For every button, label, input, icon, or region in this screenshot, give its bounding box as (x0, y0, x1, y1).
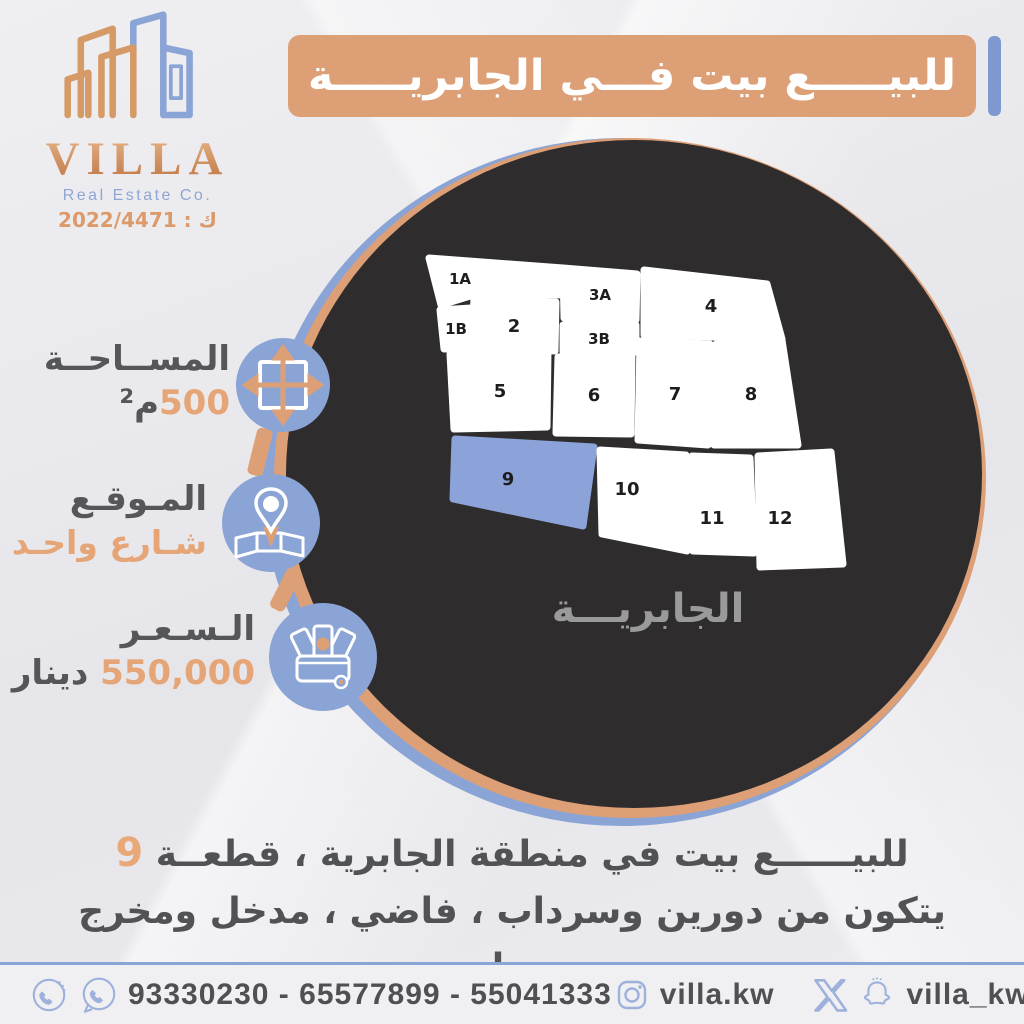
price-value: 550,000 دينار (0, 652, 255, 696)
logo-title: VILLA (30, 136, 245, 183)
map-plot-label: 9 (502, 469, 515, 490)
footer-social-group: villa.kw villa_kw (612, 974, 1024, 1016)
whatsapp-icon (78, 974, 120, 1016)
area-value: 500م² (0, 382, 230, 426)
banner: للبيـــــع بيت فـــي الجابريـــــة (288, 35, 976, 117)
footer-contact-bar: 93330230 - 65577899 - 55041333 villa.kw … (0, 962, 1024, 1024)
map-plot-label: 1B (445, 320, 467, 338)
instagram-icon (612, 975, 652, 1015)
flyer-page: 1A1B23A3B456789101112 الجابريـــة (0, 0, 1024, 1024)
map-plot-label: 4 (705, 296, 718, 317)
map-plot-label: 12 (767, 508, 792, 529)
map-plot-label: 2 (508, 316, 521, 337)
map-plot-label: 1A (449, 270, 471, 288)
logo: VILLA Real Estate Co. ك : 2022/4471 (30, 10, 245, 232)
banner-accent-bar (988, 36, 1001, 116)
price-icon-circle (269, 603, 377, 711)
footer-instagram-handle: villa.kw (660, 978, 775, 1012)
money-wallet-icon (290, 626, 355, 688)
price-title: الـسـعـر (0, 608, 255, 652)
map-plot-label: 11 (699, 508, 724, 529)
logo-subtitle: Real Estate Co. (30, 187, 245, 205)
location-title: المـوقـع (0, 478, 207, 522)
footer-social-handle: villa_kw (906, 978, 1024, 1012)
map-plot-11 (692, 456, 754, 553)
map-plot-label: 10 (614, 479, 639, 500)
map-plot-label: 3B (588, 330, 610, 348)
footer-phones-group: 93330230 - 65577899 - 55041333 (28, 974, 612, 1016)
footer-phone-numbers: 93330230 - 65577899 - 55041333 (128, 978, 612, 1012)
map-plot-label: 3A (589, 286, 611, 304)
info-block-area: المســاحــة 500م² (0, 338, 230, 425)
map-plot-label: 8 (745, 384, 758, 405)
plot-number-highlight: 9 (115, 830, 143, 876)
map-district-label: الجابريـــة (552, 586, 745, 632)
map-plot-label: 5 (494, 381, 507, 402)
snapchat-icon (856, 974, 898, 1016)
map-plot-label: 7 (669, 384, 682, 405)
logo-license: ك : 2022/4471 (30, 208, 245, 232)
banner-title: للبيـــــع بيت فـــي الجابريـــــة (308, 55, 956, 98)
info-block-location: المـوقـع شـارع واحـد (0, 478, 207, 564)
map-plot-10 (600, 450, 687, 551)
area-icon-circle (236, 338, 330, 432)
description-line1: للبيــــــع بيت في منطقة الجابرية ، قطعـ… (55, 822, 969, 884)
info-block-price: الـسـعـر 550,000 دينار (0, 608, 255, 695)
phone-icon (28, 974, 70, 1016)
map-plot-label: 6 (588, 385, 601, 406)
area-title: المســاحــة (0, 338, 230, 382)
logo-buildings-icon (58, 10, 218, 130)
location-icon-circle (222, 474, 320, 572)
x-icon (812, 977, 848, 1013)
location-value: شـارع واحـد (0, 522, 207, 564)
